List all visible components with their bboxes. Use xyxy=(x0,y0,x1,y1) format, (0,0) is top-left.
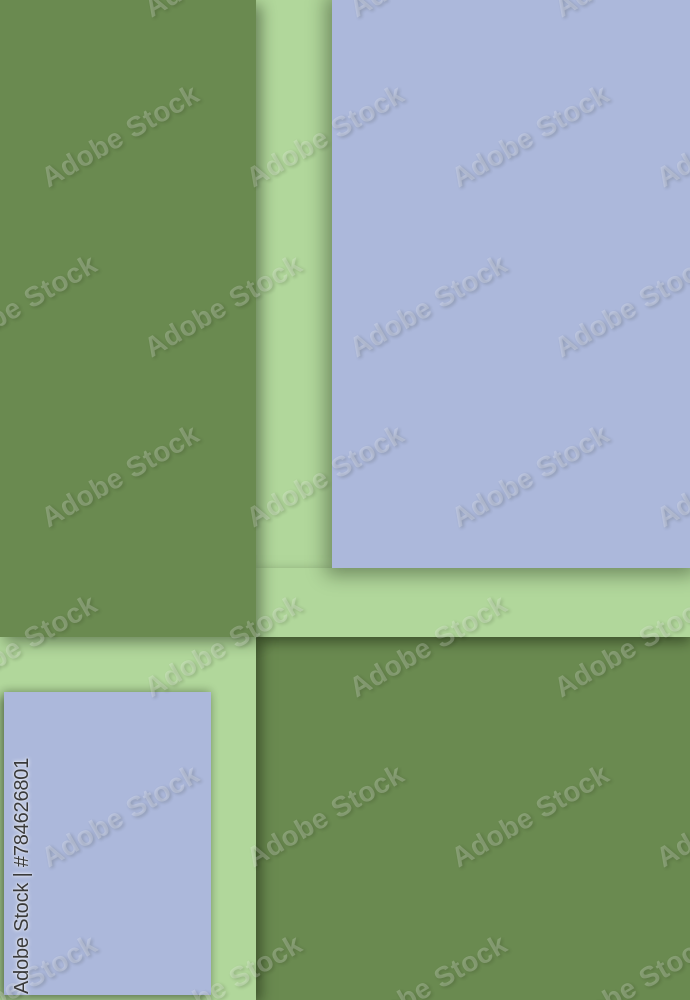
panel-large-lavender-sheet xyxy=(332,0,690,568)
panel-top-left-dark-green xyxy=(0,0,256,637)
panel-vertical-light-green-band xyxy=(256,0,332,637)
panel-bottom-right-dark-green xyxy=(256,637,690,1000)
stock-image-canvas: Adobe StockAdobe StockAdobe StockAdobe S… xyxy=(0,0,690,1000)
panel-horizontal-light-green-band xyxy=(256,568,690,637)
panel-small-lavender-sheet xyxy=(4,692,211,995)
